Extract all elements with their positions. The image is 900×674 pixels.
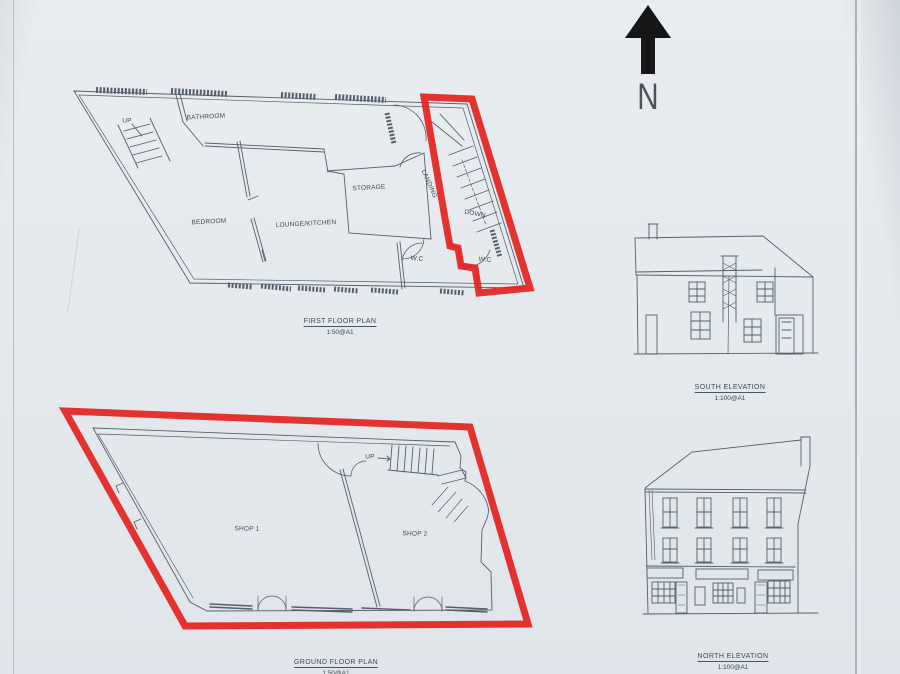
south-elevation-scale: 1:100@A1 [695, 395, 766, 402]
south-windows [689, 282, 773, 342]
north-elevation-drawing [643, 437, 818, 614]
shopfront [652, 581, 790, 613]
label-up-ground-floor: UP [365, 454, 374, 461]
ground-floor-plan-scale: 1:50@A1 [294, 670, 378, 674]
red-highlight-first-floor-staircase [424, 97, 530, 293]
stair-up-ground-floor [378, 445, 466, 484]
north-elevation-title: NORTH ELEVATION 1:100@A1 [698, 645, 769, 671]
stair-up-first-floor [118, 118, 170, 168]
label-up-first-floor: UP [122, 118, 131, 125]
south-left-door [646, 315, 657, 354]
north-windows-second-floor [661, 498, 783, 528]
north-elevation-scale: 1:100@A1 [698, 664, 769, 671]
ground-floor-plan-title-text: GROUND FLOOR PLAN [294, 659, 378, 668]
first-floor-plan-scale: 1:50@A1 [304, 329, 377, 336]
drawing-canvas [0, 0, 900, 674]
red-highlight-ground-floor [65, 411, 528, 626]
label-wc-left: W.C [410, 255, 423, 263]
north-arrow-label: N [637, 76, 658, 118]
north-elevation-title-text: NORTH ELEVATION [698, 653, 769, 662]
south-elevation-drawing [634, 224, 818, 354]
south-elevation-title: SOUTH ELEVATION 1:100@A1 [695, 376, 766, 402]
label-wc-right: W.C [478, 256, 491, 264]
ground-floor-plan-title: GROUND FLOOR PLAN 1:50@A1 [294, 651, 378, 674]
shop-fascia [646, 566, 795, 580]
label-shop2: SHOP 2 [402, 530, 427, 537]
window-hatch-top [96, 90, 386, 100]
north-arrow-icon [625, 5, 671, 74]
south-right-door [776, 315, 803, 354]
scanned-plan-sheet: N UP BATHROOM BEDROOM LOUNGE/KITCHEN STO… [0, 0, 900, 674]
first-floor-plan-title: FIRST FLOOR PLAN 1:50@A1 [304, 310, 377, 336]
north-windows-first-floor [661, 538, 783, 563]
south-elevation-title-text: SOUTH ELEVATION [695, 384, 766, 393]
first-floor-plan-drawing [74, 90, 524, 293]
ground-floor-plan-drawing [93, 428, 492, 612]
label-shop1: SHOP 1 [234, 525, 259, 532]
first-floor-plan-title-text: FIRST FLOOR PLAN [304, 318, 377, 327]
